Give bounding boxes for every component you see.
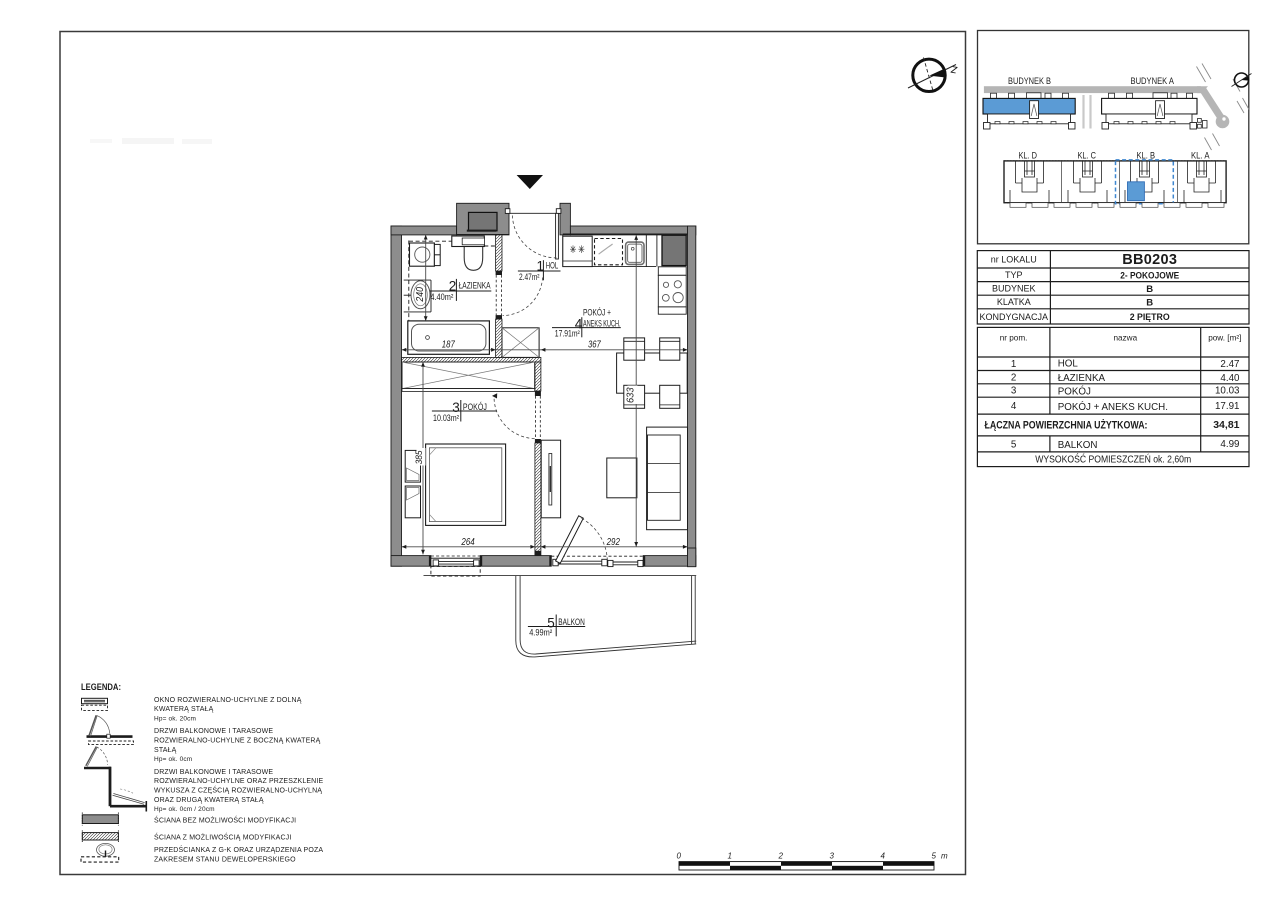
svg-text:BUDYNEK: BUDYNEK xyxy=(992,284,1036,294)
svg-text:240: 240 xyxy=(414,287,426,303)
svg-text:DRZWI BALKONOWE I TARASOWE: DRZWI BALKONOWE I TARASOWE xyxy=(154,728,273,735)
svg-text:5: 5 xyxy=(932,852,937,861)
svg-text:KL. B: KL. B xyxy=(1137,151,1156,161)
svg-text:nazwa: nazwa xyxy=(1113,333,1137,342)
svg-text:LEGENDA:: LEGENDA: xyxy=(81,682,121,692)
svg-text:nr pom.: nr pom. xyxy=(1000,333,1028,342)
svg-text:ZAKRESEM STANU DEWELOPERSKIEGO: ZAKRESEM STANU DEWELOPERSKIEGO xyxy=(154,857,296,864)
svg-text:POKÓJ: POKÓJ xyxy=(1058,387,1091,398)
svg-text:367: 367 xyxy=(588,339,602,351)
svg-text:34,81: 34,81 xyxy=(1213,419,1239,431)
svg-text:264: 264 xyxy=(461,536,475,548)
svg-text:STAŁĄ: STAŁĄ xyxy=(154,747,177,754)
svg-text:KONDYGNACJA: KONDYGNACJA xyxy=(980,312,1049,322)
svg-text:3: 3 xyxy=(830,852,835,861)
svg-text:B: B xyxy=(1146,284,1153,295)
svg-text:ŚCIANA Z MOŻLIWOŚCIĄ MODYFIKAC: ŚCIANA Z MOŻLIWOŚCIĄ MODYFIKACJI xyxy=(154,833,291,842)
svg-text:PRZEDŚCIANKA Z G-K ORAZ URZĄDZ: PRZEDŚCIANKA Z G-K ORAZ URZĄDZENIA POZA xyxy=(154,845,323,854)
svg-text:4: 4 xyxy=(1011,401,1017,412)
svg-text:1: 1 xyxy=(1011,359,1016,370)
svg-text:2.47: 2.47 xyxy=(1220,359,1239,370)
svg-text:WYSOKOŚĆ POMIESZCZEŃ ok. 2,60m: WYSOKOŚĆ POMIESZCZEŃ ok. 2,60m xyxy=(1035,453,1191,466)
svg-text:WYKUSZA Z CZĘŚCIĄ ROZWIERALNO-: WYKUSZA Z CZĘŚCIĄ ROZWIERALNO-UCHYLNĄ xyxy=(154,786,322,795)
svg-text:KWATERĄ STAŁĄ: KWATERĄ STAŁĄ xyxy=(154,706,214,713)
svg-text:KL. D: KL. D xyxy=(1019,151,1038,161)
svg-text:BUDYNEK A: BUDYNEK A xyxy=(1131,76,1175,86)
svg-text:KL. A: KL. A xyxy=(1191,151,1210,161)
svg-text:OKNO ROZWIERALNO-UCHYLNE Z DOL: OKNO ROZWIERALNO-UCHYLNE Z DOLNĄ xyxy=(154,697,302,704)
svg-text:2.47m²: 2.47m² xyxy=(519,272,540,282)
svg-text:4.40m²: 4.40m² xyxy=(430,292,453,302)
svg-text:0: 0 xyxy=(677,852,682,861)
svg-text:ROZWIERALNO-UCHYLNE Z BOCZNĄ K: ROZWIERALNO-UCHYLNE Z BOCZNĄ KWATERĄ xyxy=(154,737,321,744)
svg-text:2: 2 xyxy=(1011,372,1016,383)
svg-text:KL. C: KL. C xyxy=(1078,151,1097,161)
svg-text:1: 1 xyxy=(728,852,732,861)
svg-text:3: 3 xyxy=(1011,385,1017,396)
svg-text:4.99m²: 4.99m² xyxy=(529,628,552,638)
svg-text:POKÓJ +: POKÓJ + xyxy=(583,307,611,318)
svg-text:ŁAZIENKA: ŁAZIENKA xyxy=(459,281,491,291)
svg-text:4.40: 4.40 xyxy=(1220,373,1240,384)
svg-text:17.91m²: 17.91m² xyxy=(555,328,580,338)
svg-text:B: B xyxy=(1146,298,1153,309)
svg-text:BB0203: BB0203 xyxy=(1122,252,1177,268)
svg-text:10.03m²: 10.03m² xyxy=(433,413,459,423)
svg-text:4.99: 4.99 xyxy=(1220,439,1239,450)
svg-text:2 PIĘTRO: 2 PIĘTRO xyxy=(1130,312,1170,323)
svg-text:ŚCIANA BEZ MOŻLIWOŚCI MODYFIKA: ŚCIANA BEZ MOŻLIWOŚCI MODYFIKACJI xyxy=(154,815,296,824)
svg-text:BUDYNEK B: BUDYNEK B xyxy=(1008,76,1051,86)
svg-text:TYP: TYP xyxy=(1005,270,1023,280)
svg-text:HOL: HOL xyxy=(1058,359,1079,370)
svg-text:ŁAZIENKA: ŁAZIENKA xyxy=(1058,373,1106,384)
svg-text:Hp= ok. 0cm / 20cm: Hp= ok. 0cm / 20cm xyxy=(154,806,215,813)
svg-text:nr LOKALU: nr LOKALU xyxy=(991,255,1037,265)
svg-text:2: 2 xyxy=(778,852,784,861)
svg-text:10.03: 10.03 xyxy=(1215,386,1240,397)
svg-text:DRZWI BALKONOWE I TARASOWE: DRZWI BALKONOWE I TARASOWE xyxy=(154,769,273,776)
svg-text:17.91: 17.91 xyxy=(1215,401,1240,412)
svg-text:pow. [m²]: pow. [m²] xyxy=(1208,333,1241,342)
svg-text:Hp= ok. 0cm: Hp= ok. 0cm xyxy=(154,756,192,763)
svg-text:ORAZ DRUGĄ KWATERĄ STAŁĄ: ORAZ DRUGĄ KWATERĄ STAŁĄ xyxy=(154,797,264,804)
svg-text:187: 187 xyxy=(442,340,455,351)
svg-text:BALKON: BALKON xyxy=(1058,440,1098,451)
svg-text:5: 5 xyxy=(1011,439,1017,450)
svg-text:385: 385 xyxy=(414,450,425,465)
svg-text:633: 633 xyxy=(626,387,637,403)
svg-text:KLATKA: KLATKA xyxy=(997,297,1031,307)
svg-text:ŁĄCZNA POWIERZCHNIA UŻYTKOWA:: ŁĄCZNA POWIERZCHNIA UŻYTKOWA: xyxy=(985,419,1148,432)
svg-text:POKÓJ + ANEKS KUCH.: POKÓJ + ANEKS KUCH. xyxy=(1058,402,1168,413)
svg-text:m: m xyxy=(941,852,948,861)
svg-text:2- POKOJOWE: 2- POKOJOWE xyxy=(1120,270,1179,281)
svg-text:292: 292 xyxy=(606,536,620,548)
svg-text:HOL: HOL xyxy=(546,261,559,272)
svg-text:Hp= ok. 20cm: Hp= ok. 20cm xyxy=(154,715,196,722)
svg-text:ROZWIERALNO-UCHYLNE ORAZ PRZES: ROZWIERALNO-UCHYLNE ORAZ PRZESZKLENIE xyxy=(154,778,323,785)
svg-text:4: 4 xyxy=(881,852,886,861)
